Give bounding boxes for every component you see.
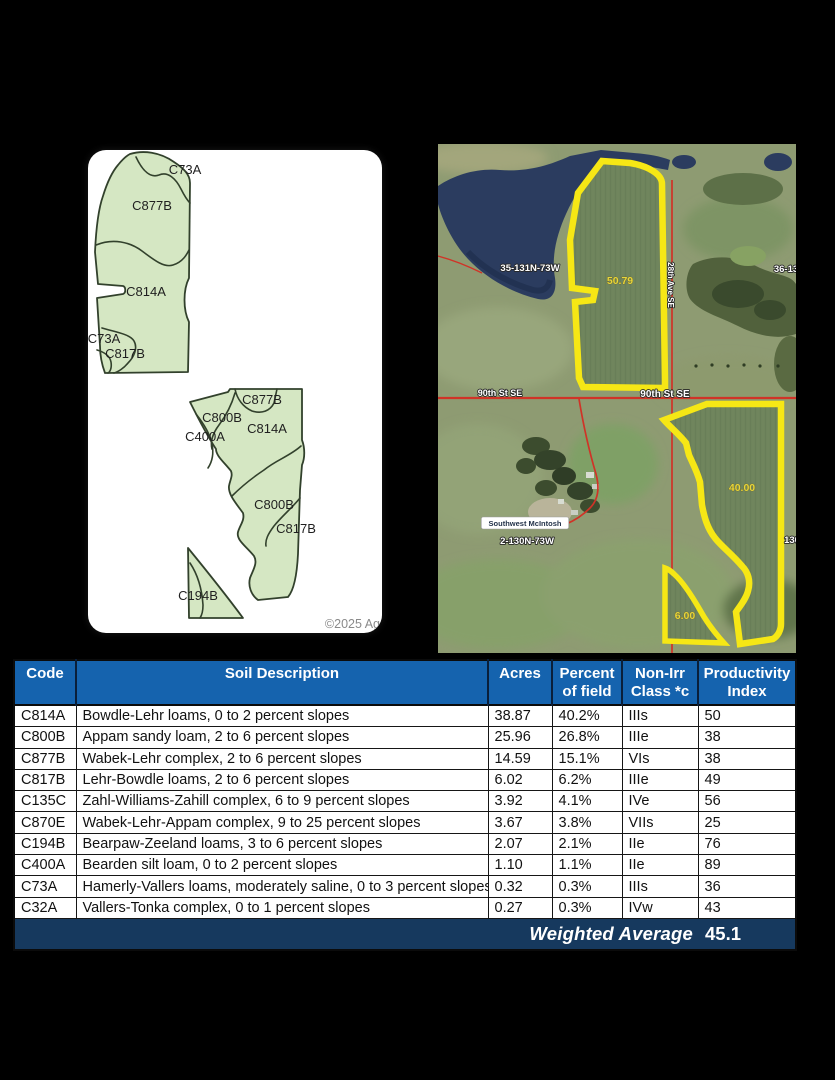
table-cell: C32A bbox=[14, 897, 76, 918]
table-cell: IIIe bbox=[622, 769, 698, 790]
table-row: C800BAppam sandy loam, 2 to 6 percent sl… bbox=[14, 727, 796, 748]
table-cell: 14.59 bbox=[488, 748, 552, 769]
table-row: C877BWabek-Lehr complex, 2 to 6 percent … bbox=[14, 748, 796, 769]
table-cell: C800B bbox=[14, 727, 76, 748]
table-cell: 76 bbox=[698, 833, 796, 854]
table-cell: 38 bbox=[698, 748, 796, 769]
column-header: Soil Description bbox=[76, 660, 488, 705]
field-acreage-label: 40.00 bbox=[729, 482, 755, 494]
soil-code-label: C814A bbox=[247, 421, 287, 436]
table-cell: 6.02 bbox=[488, 769, 552, 790]
table-cell: IIIs bbox=[622, 705, 698, 727]
place-label: 36-13 bbox=[774, 264, 796, 275]
soil-code-label: C877B bbox=[132, 198, 172, 213]
table-cell: Hamerly-Vallers loams, moderately saline… bbox=[76, 876, 488, 897]
table-row: C32AVallers-Tonka complex, 0 to 1 percen… bbox=[14, 897, 796, 918]
column-header: Code bbox=[14, 660, 76, 705]
table-cell: Vallers-Tonka complex, 0 to 1 percent sl… bbox=[76, 897, 488, 918]
table-cell: 43 bbox=[698, 897, 796, 918]
soil-code-label: C73A bbox=[88, 331, 121, 346]
soil-code-label: C877B bbox=[242, 392, 282, 407]
table-cell: C814A bbox=[14, 705, 76, 727]
table-cell: 49 bbox=[698, 769, 796, 790]
soils-table-header: CodeSoil DescriptionAcresPercentof field… bbox=[14, 660, 796, 705]
table-cell: Wabek-Lehr-Appam complex, 9 to 25 percen… bbox=[76, 812, 488, 833]
table-cell: IVw bbox=[622, 897, 698, 918]
aerial-map: 50.7940.006.0035-131N-73W36-1390th St SE… bbox=[438, 144, 796, 653]
table-cell: 56 bbox=[698, 791, 796, 812]
table-cell: VIIs bbox=[622, 812, 698, 833]
table-cell: IVe bbox=[622, 791, 698, 812]
field-acreage-label: 6.00 bbox=[675, 610, 696, 622]
table-cell: IIe bbox=[622, 855, 698, 876]
table-cell: 25 bbox=[698, 812, 796, 833]
table-cell: 3.67 bbox=[488, 812, 552, 833]
table-cell: C135C bbox=[14, 791, 76, 812]
table-cell: Bowdle-Lehr loams, 0 to 2 percent slopes bbox=[76, 705, 488, 727]
column-header: Acres bbox=[488, 660, 552, 705]
field-acreage-label: 50.79 bbox=[607, 275, 633, 287]
table-cell: 6.2% bbox=[552, 769, 622, 790]
soils-table-footer: Weighted Average 45.1 bbox=[14, 918, 796, 950]
soil-polygon-small bbox=[188, 548, 243, 618]
table-cell: 1.1% bbox=[552, 855, 622, 876]
table-cell: 15.1% bbox=[552, 748, 622, 769]
table-cell: 4.1% bbox=[552, 791, 622, 812]
place-label: 90th St SE bbox=[478, 388, 523, 398]
column-header: Non-IrrClass *c bbox=[622, 660, 698, 705]
table-cell: C194B bbox=[14, 833, 76, 854]
table-cell: 40.2% bbox=[552, 705, 622, 727]
table-cell: C400A bbox=[14, 855, 76, 876]
column-header: Percentof field bbox=[552, 660, 622, 705]
table-row: C400ABearden silt loam, 0 to 2 percent s… bbox=[14, 855, 796, 876]
soil-map-card: C73AC877BC814AC73AC817BC877BC800BC814AC4… bbox=[88, 150, 382, 633]
place-label-boxed: Southwest McIntosh bbox=[489, 519, 562, 528]
table-cell: 25.96 bbox=[488, 727, 552, 748]
weighted-average-label: Weighted Average bbox=[14, 918, 698, 950]
table-cell: 0.3% bbox=[552, 876, 622, 897]
table-cell: IIe bbox=[622, 833, 698, 854]
table-row: C814ABowdle-Lehr loams, 0 to 2 percent s… bbox=[14, 705, 796, 727]
column-header: ProductivityIndex bbox=[698, 660, 796, 705]
table-cell: C73A bbox=[14, 876, 76, 897]
soil-code-label: C814A bbox=[126, 284, 166, 299]
soil-code-label: C817B bbox=[276, 521, 316, 536]
soils-table: CodeSoil DescriptionAcresPercentof field… bbox=[13, 659, 797, 951]
table-cell: Appam sandy loam, 2 to 6 percent slopes bbox=[76, 727, 488, 748]
table-cell: Bearden silt loam, 0 to 2 percent slopes bbox=[76, 855, 488, 876]
soil-code-label: C194B bbox=[178, 588, 218, 603]
weighted-average-value: 45.1 bbox=[698, 918, 796, 950]
table-cell: Lehr-Bowdle loams, 2 to 6 percent slopes bbox=[76, 769, 488, 790]
place-label: 130 bbox=[784, 535, 796, 546]
table-row: C135CZahl-Williams-Zahill complex, 6 to … bbox=[14, 791, 796, 812]
table-cell: C877B bbox=[14, 748, 76, 769]
soils-report-page: C73AC877BC814AC73AC817BC877BC800BC814AC4… bbox=[0, 0, 835, 1080]
table-cell: Bearpaw-Zeeland loams, 3 to 6 percent sl… bbox=[76, 833, 488, 854]
soil-code-label: C400A bbox=[185, 429, 225, 444]
table-row: C73AHamerly-Vallers loams, moderately sa… bbox=[14, 876, 796, 897]
table-cell: VIs bbox=[622, 748, 698, 769]
table-cell: 89 bbox=[698, 855, 796, 876]
place-label: 35-131N-73W bbox=[500, 263, 559, 274]
table-cell: 26.8% bbox=[552, 727, 622, 748]
table-row: C870EWabek-Lehr-Appam complex, 9 to 25 p… bbox=[14, 812, 796, 833]
table-cell: 0.32 bbox=[488, 876, 552, 897]
table-cell: Wabek-Lehr complex, 2 to 6 percent slope… bbox=[76, 748, 488, 769]
table-cell: 3.92 bbox=[488, 791, 552, 812]
table-cell: 1.10 bbox=[488, 855, 552, 876]
table-row: C194BBearpaw-Zeeland loams, 3 to 6 perce… bbox=[14, 833, 796, 854]
table-cell: 38 bbox=[698, 727, 796, 748]
table-cell: C870E bbox=[14, 812, 76, 833]
table-row: C817BLehr-Bowdle loams, 2 to 6 percent s… bbox=[14, 769, 796, 790]
table-cell: Zahl-Williams-Zahill complex, 6 to 9 per… bbox=[76, 791, 488, 812]
table-cell: 38.87 bbox=[488, 705, 552, 727]
copyright-text: ©2025 Ag bbox=[325, 617, 380, 631]
soil-code-label: C800B bbox=[254, 497, 294, 512]
table-cell: C817B bbox=[14, 769, 76, 790]
road-label-vertical: 28th Ave SE bbox=[666, 262, 675, 308]
table-cell: 2.07 bbox=[488, 833, 552, 854]
soil-map: C73AC877BC814AC73AC817BC877BC800BC814AC4… bbox=[88, 150, 382, 633]
soil-code-label: C817B bbox=[105, 346, 145, 361]
table-cell: 50 bbox=[698, 705, 796, 727]
table-cell: 0.3% bbox=[552, 897, 622, 918]
soil-code-label: C800B bbox=[202, 410, 242, 425]
table-cell: 0.27 bbox=[488, 897, 552, 918]
table-cell: IIIs bbox=[622, 876, 698, 897]
table-cell: 3.8% bbox=[552, 812, 622, 833]
soil-code-label: C73A bbox=[169, 162, 202, 177]
place-label: 2-130N-73W bbox=[500, 536, 554, 547]
place-label: 90th St SE bbox=[640, 389, 690, 400]
table-cell: 36 bbox=[698, 876, 796, 897]
table-cell: IIIe bbox=[622, 727, 698, 748]
table-cell: 2.1% bbox=[552, 833, 622, 854]
